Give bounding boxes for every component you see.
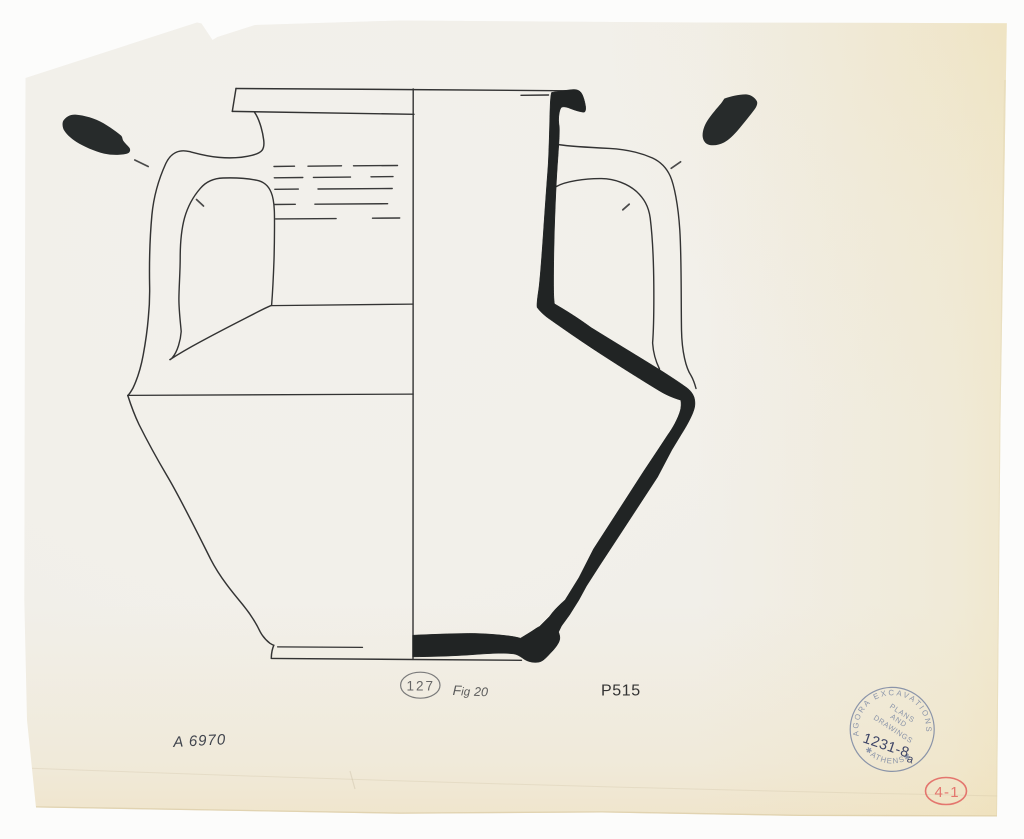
svg-text:A 6970: A 6970 [172, 731, 227, 751]
svg-text:Fig 20: Fig 20 [452, 682, 488, 699]
svg-text:P515: P515 [601, 683, 641, 700]
svg-text:127: 127 [407, 679, 436, 694]
svg-text:4-1: 4-1 [935, 784, 960, 801]
